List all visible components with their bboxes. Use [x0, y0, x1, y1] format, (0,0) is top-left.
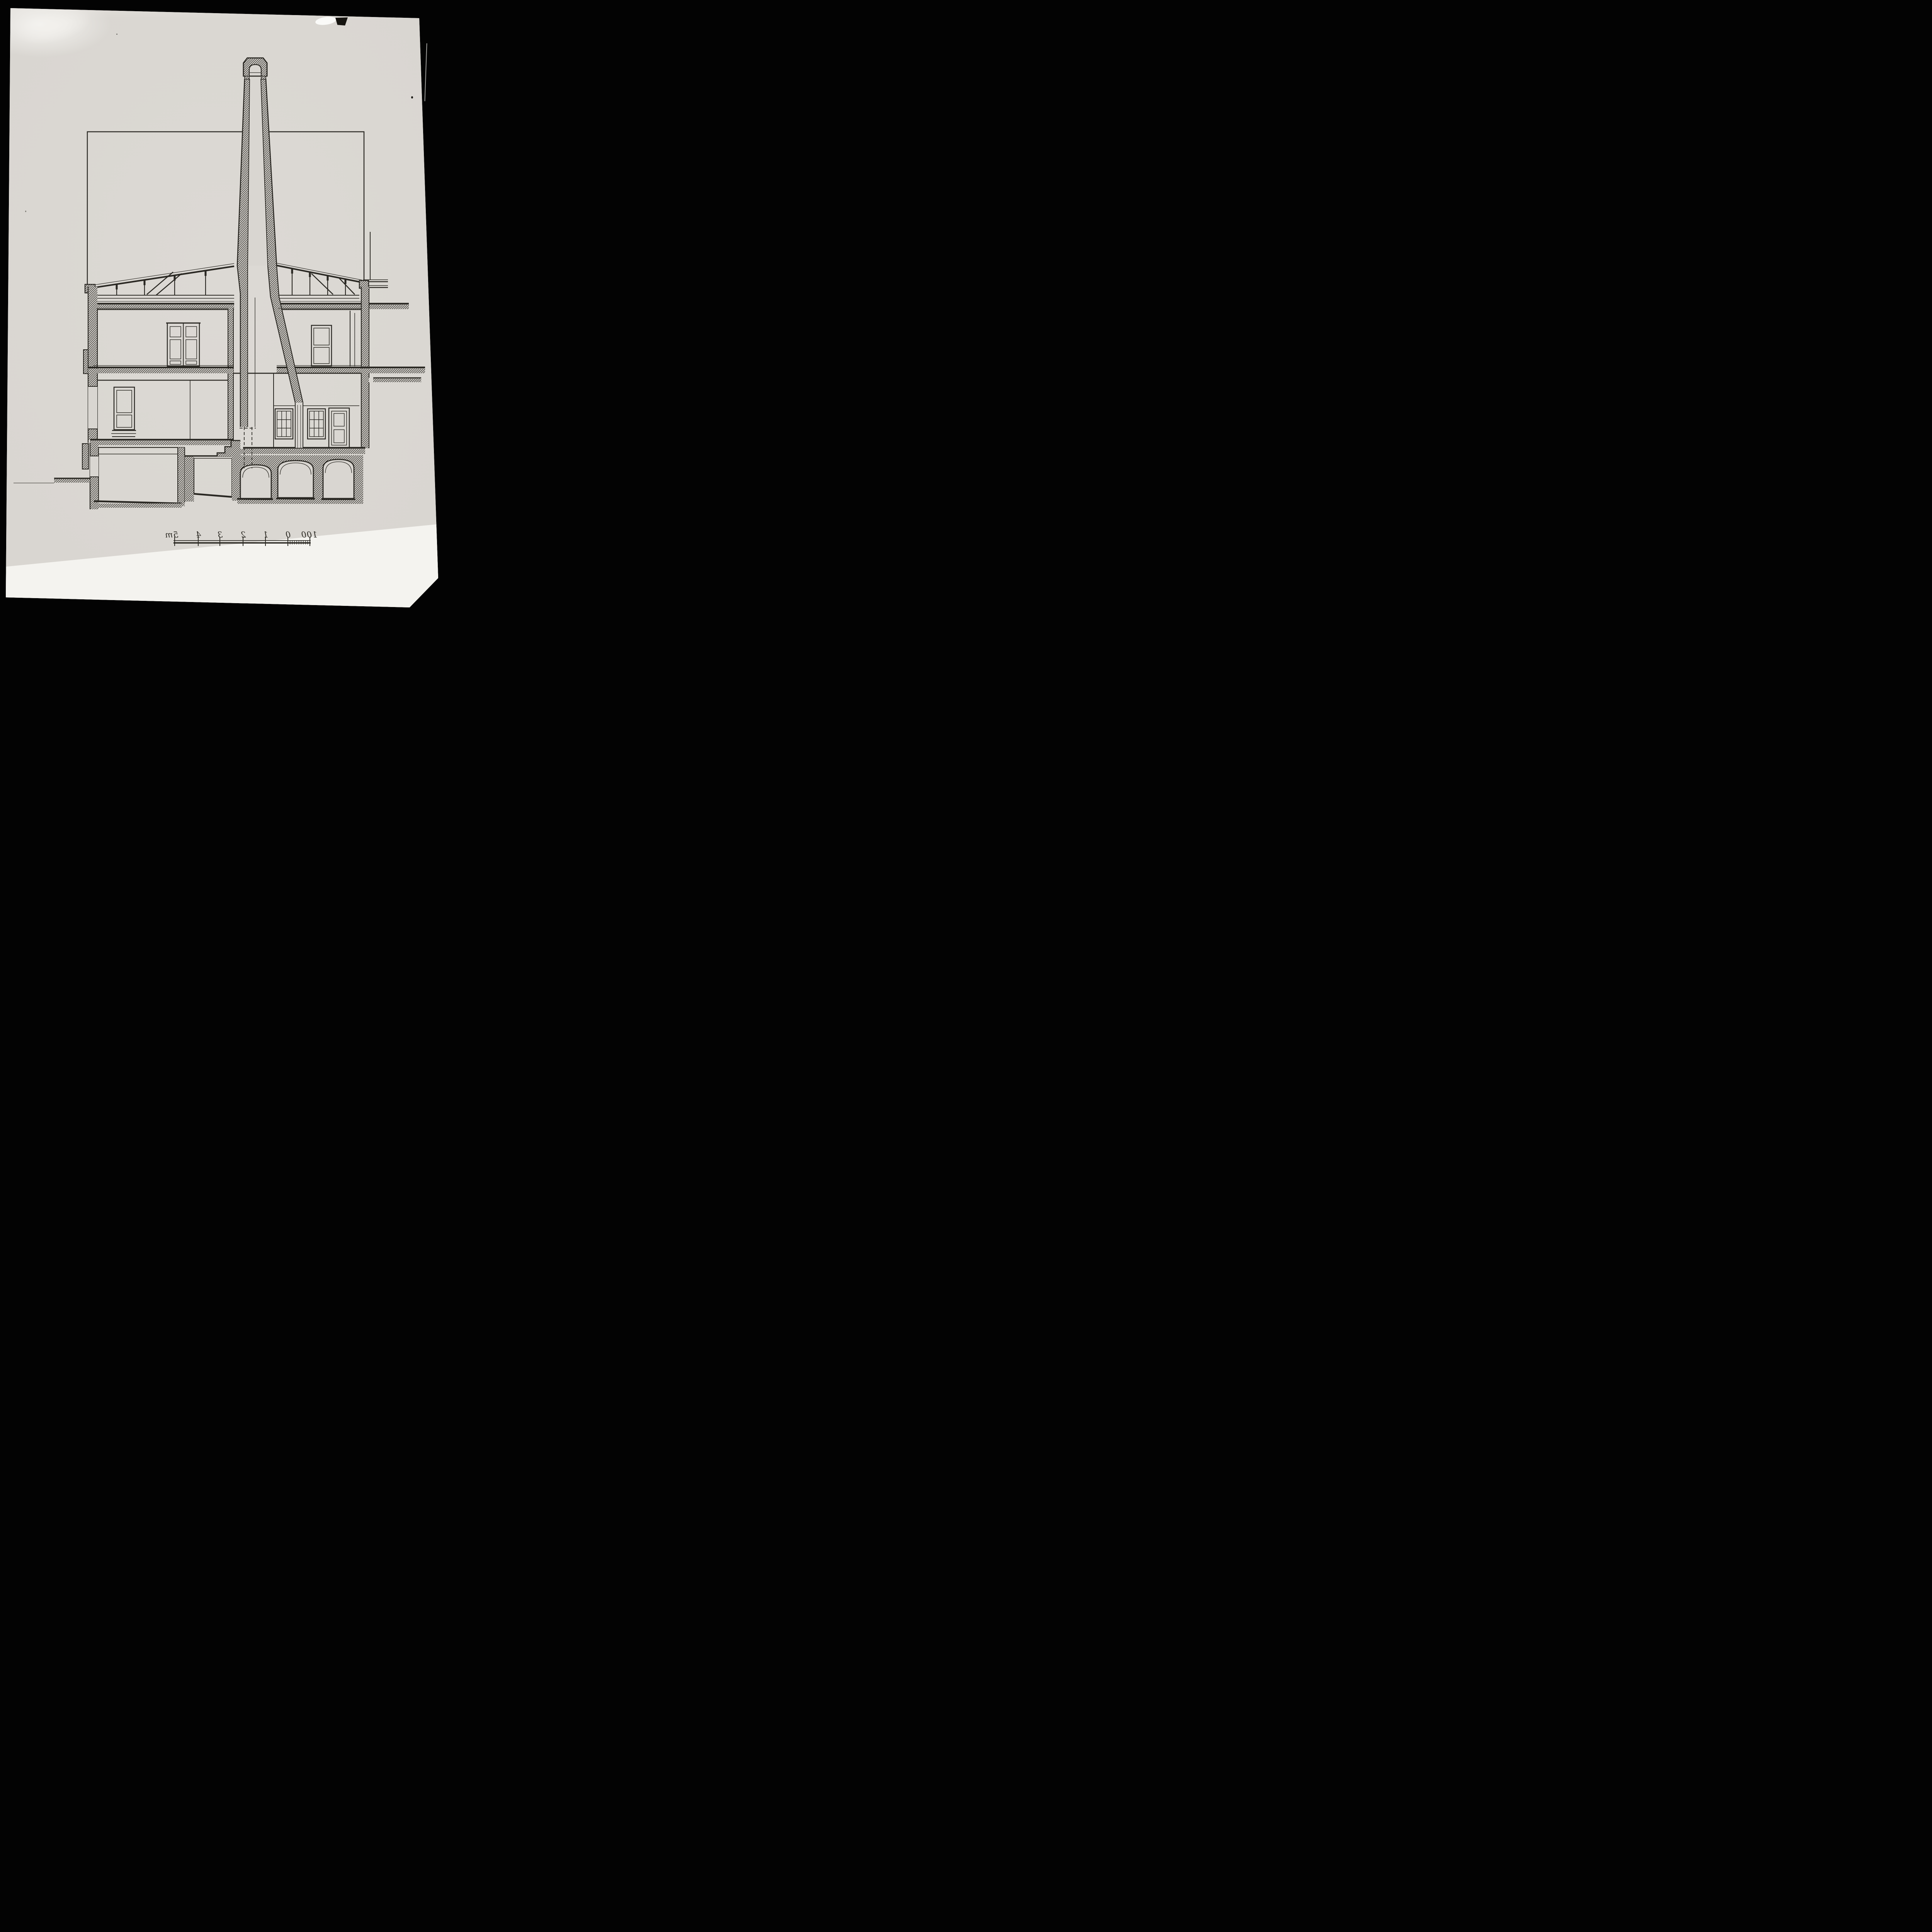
adjacent-roof-lines [363, 232, 388, 287]
scale-label-0: 0 [285, 530, 291, 539]
basement-middle-cellar [185, 456, 240, 502]
ink-speck-1 [411, 96, 413, 99]
interior-wall-left-of-chimney [228, 308, 233, 448]
ground-floor-left-room [97, 380, 228, 440]
vault-opening-1 [240, 465, 271, 498]
first-floor-left-room [97, 310, 228, 366]
vault-opening-2 [278, 461, 313, 498]
scale-label-100: 100 [301, 530, 317, 539]
section-drawing [0, 0, 456, 618]
scale-label-2: 2 [240, 530, 246, 539]
roof-truss-right [277, 263, 362, 298]
stove-pipe [295, 403, 303, 448]
roof-plane-rectangle [87, 132, 364, 286]
roof-truss-left [87, 264, 234, 298]
scale-label-5m: 5m [165, 530, 178, 539]
ink-speck-3 [25, 211, 26, 212]
basement-left-room [14, 443, 185, 509]
scale-label-1: 1 [263, 530, 268, 539]
basement-vaults [237, 455, 363, 504]
scale-label-3: 3 [217, 530, 223, 539]
scale-label-4: 4 [196, 530, 201, 539]
ink-speck-2 [116, 34, 117, 35]
first-floor-slab [88, 366, 425, 382]
chimney-flue-slant [268, 266, 303, 403]
photo-on-black-background: 5m 4 3 2 1 0 100 [0, 0, 456, 618]
